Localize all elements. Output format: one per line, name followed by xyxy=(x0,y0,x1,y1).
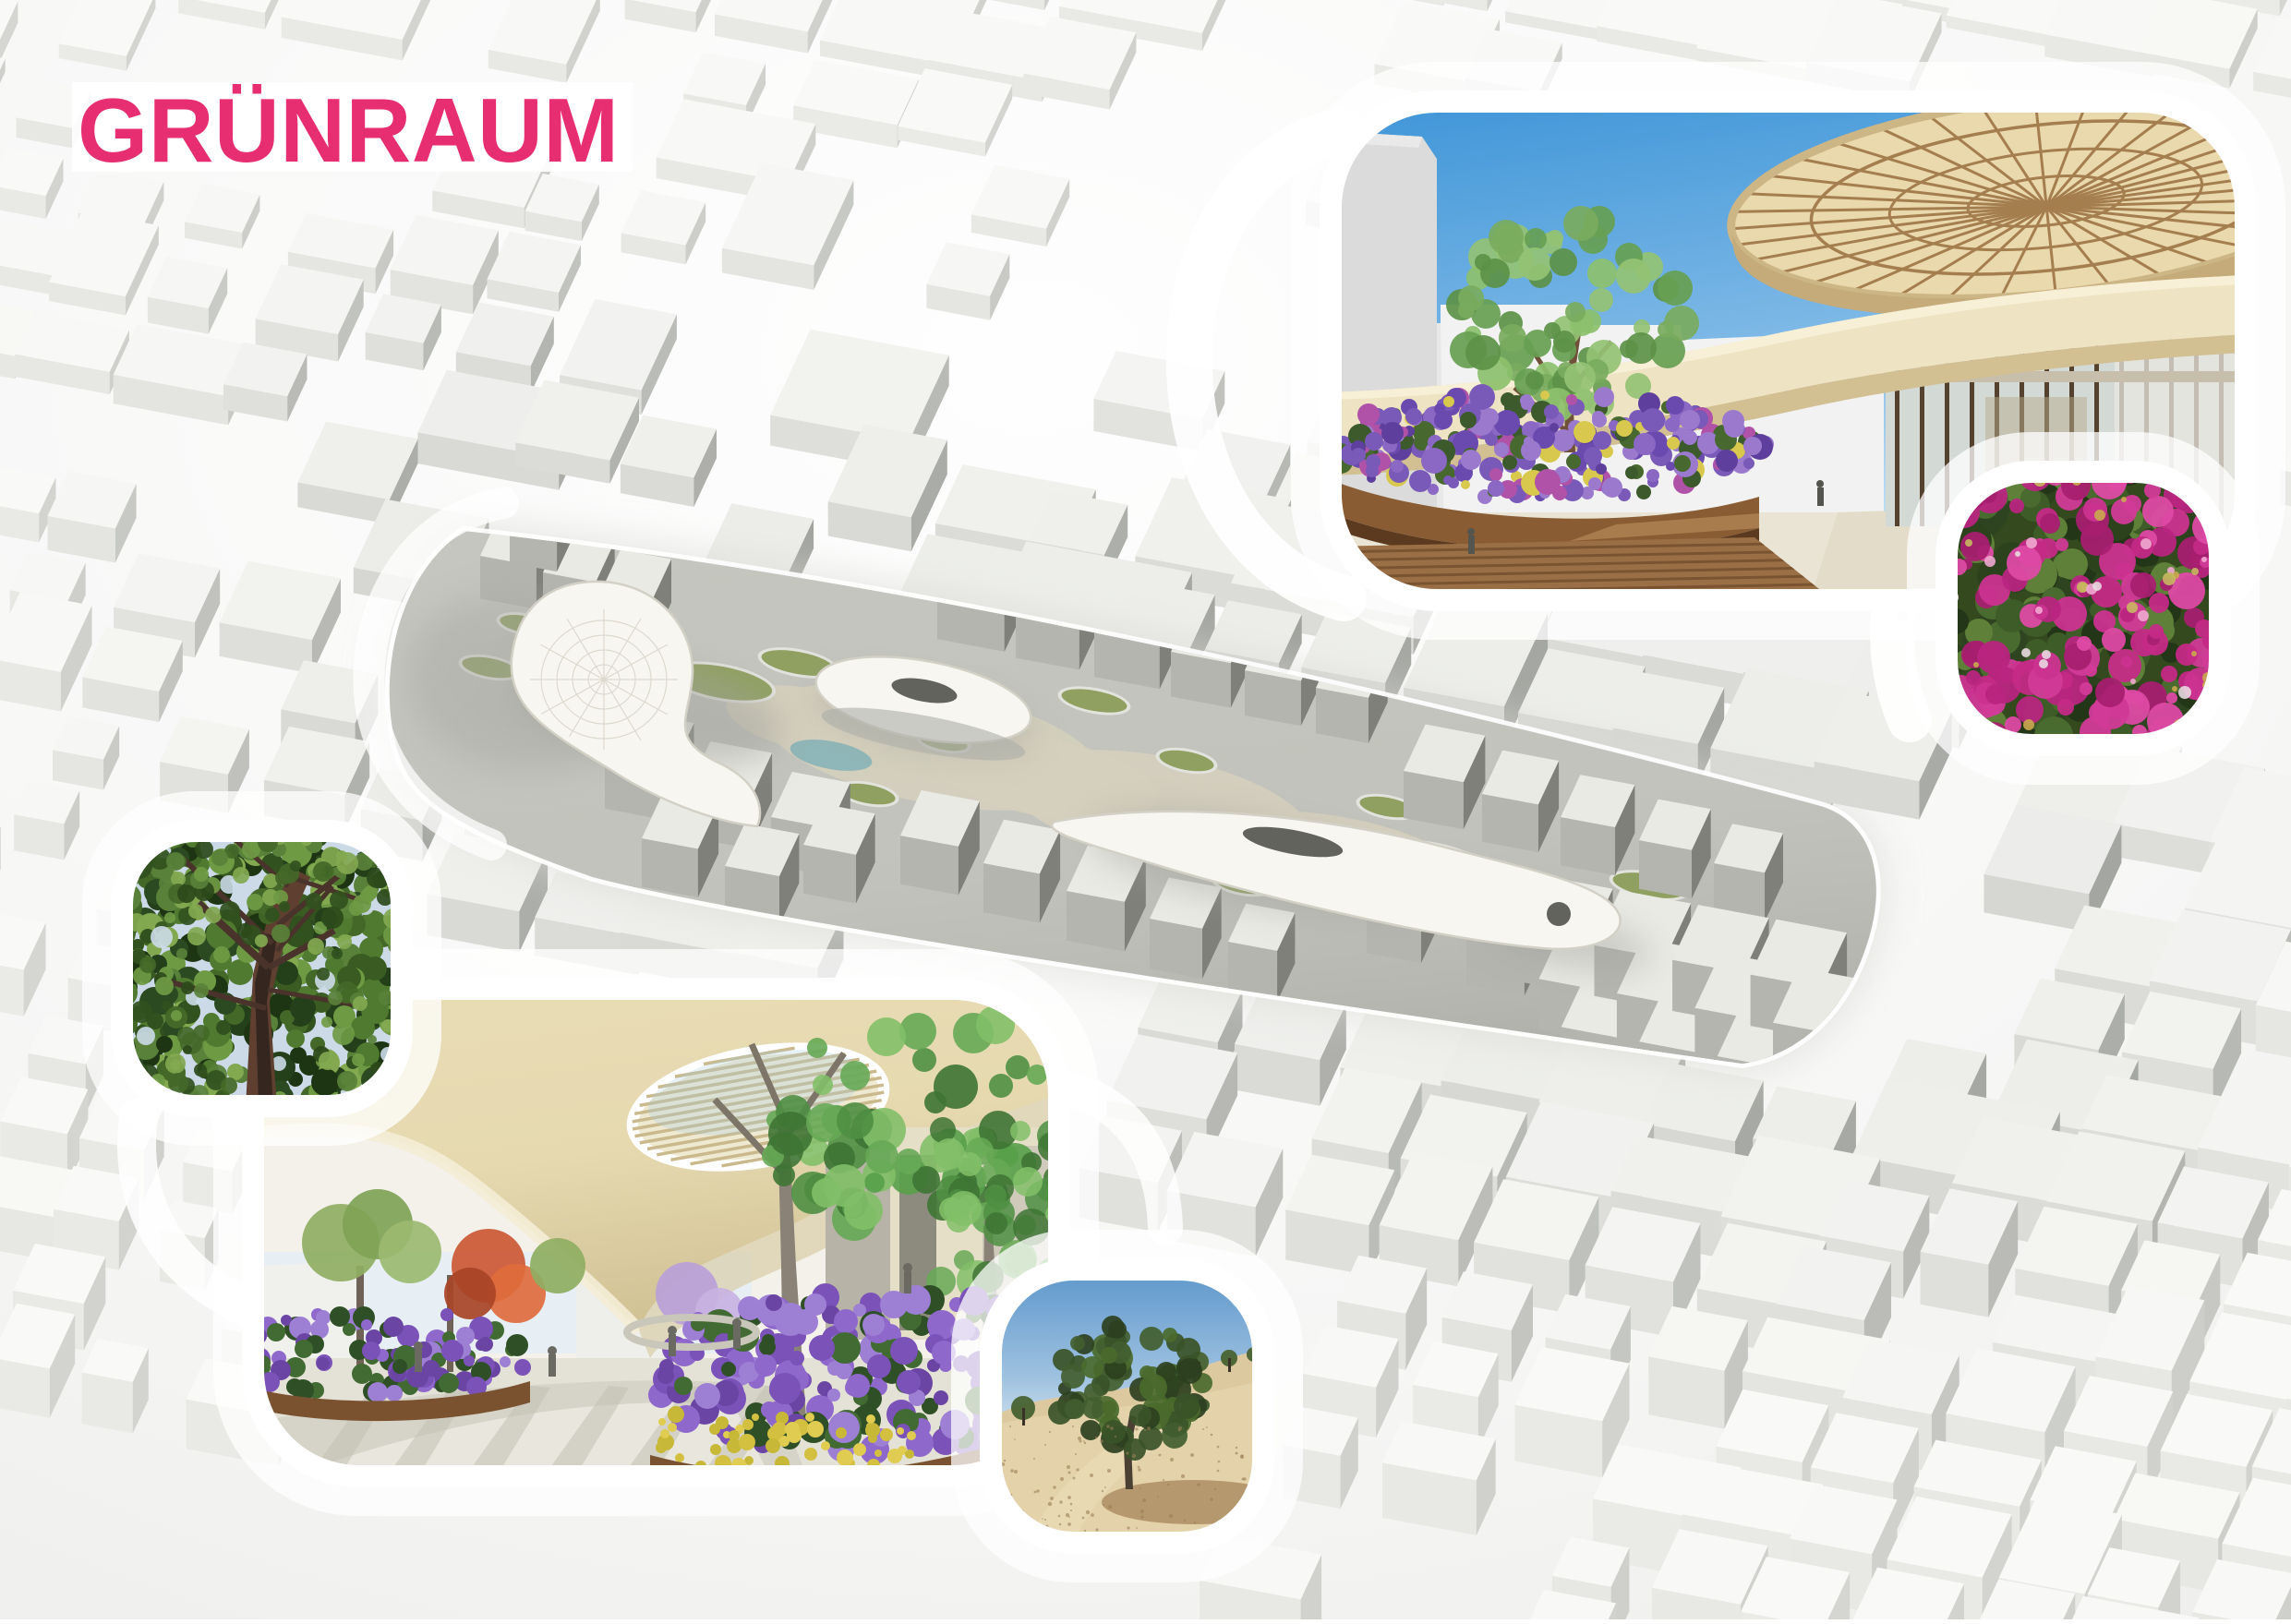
svg-text:GRÜNRAUM: GRÜNRAUM xyxy=(78,79,620,181)
